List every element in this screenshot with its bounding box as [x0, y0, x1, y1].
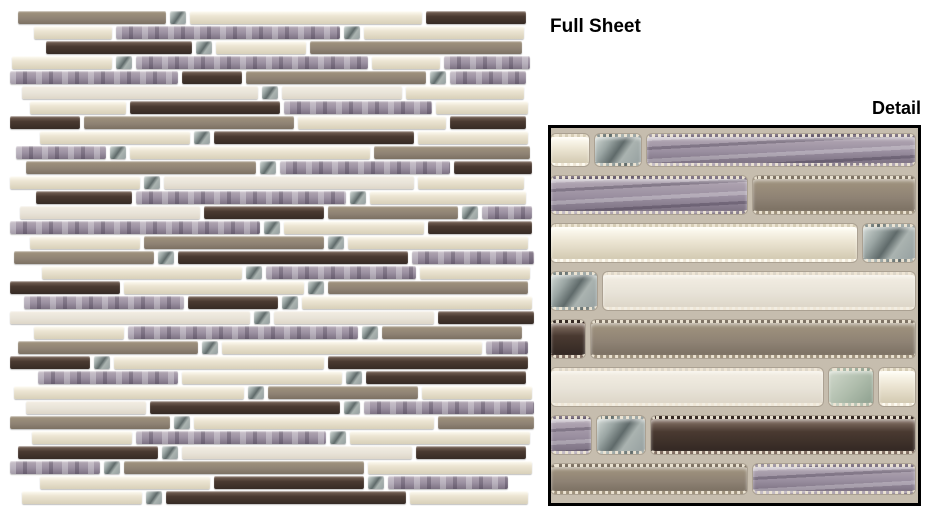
- mosaic-strip-tile: [222, 341, 482, 354]
- tile-row: [10, 490, 535, 505]
- tile-row: [551, 459, 918, 499]
- mosaic-square-tile: [104, 461, 120, 474]
- mosaic-strip-tile: [366, 371, 526, 384]
- mosaic-strip-tile: [328, 281, 528, 294]
- mosaic-square-tile: [595, 134, 641, 166]
- mosaic-strip-tile: [364, 401, 534, 414]
- mosaic-strip-tile: [368, 461, 532, 474]
- mosaic-strip-tile: [298, 116, 446, 129]
- tile-row: [10, 10, 535, 25]
- mosaic-strip-tile: [551, 416, 591, 454]
- mosaic-strip-tile: [216, 41, 306, 54]
- mosaic-square-tile: [162, 446, 178, 459]
- tile-row: [10, 445, 535, 460]
- mosaic-strip-tile: [10, 356, 90, 369]
- mosaic-strip-tile: [591, 320, 915, 358]
- tile-row: [551, 129, 918, 171]
- tile-row: [10, 205, 535, 220]
- mosaic-strip-tile: [30, 236, 140, 249]
- tile-row: [10, 85, 535, 100]
- tile-row: [10, 415, 535, 430]
- tile-row: [551, 315, 918, 363]
- mosaic-strip-tile: [16, 146, 106, 159]
- mosaic-strip-tile: [438, 416, 534, 429]
- mosaic-square-tile: [551, 272, 597, 310]
- tile-row: [10, 250, 535, 265]
- mosaic-strip-tile: [178, 251, 408, 264]
- mosaic-strip-tile: [34, 26, 112, 39]
- mosaic-strip-tile: [438, 311, 534, 324]
- mosaic-square-tile: [262, 86, 278, 99]
- mosaic-strip-tile: [46, 41, 192, 54]
- mosaic-square-tile: [144, 176, 160, 189]
- mosaic-square-tile: [328, 236, 344, 249]
- mosaic-strip-tile: [136, 431, 326, 444]
- mosaic-strip-tile: [40, 476, 210, 489]
- mosaic-strip-tile: [388, 476, 508, 489]
- mosaic-strip-tile: [204, 206, 324, 219]
- mosaic-strip-tile: [36, 191, 132, 204]
- tile-row: [10, 235, 535, 250]
- mosaic-square-tile: [308, 281, 324, 294]
- tile-row: [10, 175, 535, 190]
- mosaic-strip-tile: [450, 71, 526, 84]
- tile-row: [10, 430, 535, 445]
- mosaic-strip-tile: [42, 266, 242, 279]
- mosaic-strip-tile: [426, 11, 526, 24]
- mosaic-strip-tile: [416, 446, 526, 459]
- mosaic-strip-tile: [10, 311, 250, 324]
- tile-row: [10, 340, 535, 355]
- mosaic-strip-tile: [418, 176, 524, 189]
- mosaic-strip-tile: [406, 86, 524, 99]
- mosaic-strip-tile: [753, 464, 915, 494]
- mosaic-strip-tile: [551, 464, 747, 494]
- full-sheet-image: [10, 10, 535, 505]
- tile-row: [10, 355, 535, 370]
- mosaic-square-tile: [110, 146, 126, 159]
- mosaic-strip-tile: [38, 371, 178, 384]
- mosaic-square-tile: [158, 251, 174, 264]
- mosaic-strip-tile: [144, 236, 324, 249]
- mosaic-strip-tile: [182, 371, 342, 384]
- mosaic-strip-tile: [114, 356, 324, 369]
- mosaic-strip-tile: [190, 11, 422, 24]
- mosaic-strip-tile: [124, 281, 304, 294]
- mosaic-strip-tile: [284, 101, 432, 114]
- tile-row: [10, 70, 535, 85]
- tile-row: [10, 310, 535, 325]
- mosaic-strip-tile: [24, 296, 184, 309]
- mosaic-strip-tile: [370, 191, 526, 204]
- mosaic-square-tile: [202, 341, 218, 354]
- mosaic-strip-tile: [551, 368, 823, 406]
- mosaic-strip-tile: [486, 341, 528, 354]
- mosaic-strip-tile: [246, 71, 426, 84]
- mosaic-strip-tile: [551, 320, 585, 358]
- mosaic-strip-tile: [374, 146, 530, 159]
- detail-image: [548, 125, 921, 506]
- mosaic-strip-tile: [188, 296, 278, 309]
- mosaic-square-tile: [597, 416, 645, 454]
- mosaic-square-tile: [264, 221, 280, 234]
- mosaic-strip-tile: [364, 26, 524, 39]
- mosaic-square-tile: [829, 368, 873, 406]
- product-collage: Full Sheet Detail: [0, 0, 935, 512]
- mosaic-strip-tile: [422, 386, 532, 399]
- mosaic-square-tile: [863, 224, 915, 262]
- mosaic-strip-tile: [418, 131, 528, 144]
- mosaic-strip-tile: [18, 11, 166, 24]
- tile-row: [10, 115, 535, 130]
- mosaic-strip-tile: [22, 491, 142, 504]
- mosaic-square-tile: [94, 356, 110, 369]
- mosaic-strip-tile: [436, 101, 528, 114]
- tile-row: [551, 219, 918, 267]
- tile-row: [10, 460, 535, 475]
- tile-row: [10, 190, 535, 205]
- mosaic-strip-tile: [454, 161, 532, 174]
- tile-row: [551, 411, 918, 459]
- mosaic-square-tile: [146, 491, 162, 504]
- mosaic-strip-tile: [450, 116, 526, 129]
- mosaic-strip-tile: [651, 416, 915, 454]
- tile-row: [10, 220, 535, 235]
- tile-row: [10, 145, 535, 160]
- mosaic-strip-tile: [214, 131, 414, 144]
- mosaic-strip-tile: [32, 431, 132, 444]
- mosaic-strip-tile: [20, 206, 200, 219]
- mosaic-strip-tile: [444, 56, 530, 69]
- mosaic-strip-tile: [420, 266, 530, 279]
- mosaic-strip-tile: [603, 272, 915, 310]
- tile-row: [10, 280, 535, 295]
- mosaic-strip-tile: [10, 116, 80, 129]
- mosaic-strip-tile: [182, 446, 412, 459]
- mosaic-square-tile: [362, 326, 378, 339]
- tile-row: [10, 265, 535, 280]
- mosaic-strip-tile: [328, 206, 458, 219]
- mosaic-strip-tile: [10, 416, 170, 429]
- mosaic-square-tile: [254, 311, 270, 324]
- mosaic-strip-tile: [328, 356, 528, 369]
- mosaic-strip-tile: [26, 401, 146, 414]
- mosaic-strip-tile: [18, 341, 198, 354]
- mosaic-strip-tile: [284, 221, 424, 234]
- mosaic-square-tile: [248, 386, 264, 399]
- mosaic-strip-tile: [10, 221, 260, 234]
- mosaic-strip-tile: [10, 176, 140, 189]
- mosaic-strip-tile: [136, 56, 368, 69]
- mosaic-square-tile: [368, 476, 384, 489]
- mosaic-strip-tile: [551, 134, 589, 166]
- tile-row: [10, 40, 535, 55]
- mosaic-strip-tile: [753, 176, 915, 214]
- mosaic-strip-tile: [30, 101, 126, 114]
- mosaic-strip-tile: [310, 41, 522, 54]
- mosaic-square-tile: [170, 11, 186, 24]
- mosaic-square-tile: [462, 206, 478, 219]
- mosaic-strip-tile: [268, 386, 418, 399]
- mosaic-square-tile: [246, 266, 262, 279]
- mosaic-strip-tile: [482, 206, 532, 219]
- tile-row: [10, 400, 535, 415]
- tile-row: [10, 25, 535, 40]
- mosaic-strip-tile: [14, 386, 244, 399]
- tile-row: [10, 160, 535, 175]
- tile-row: [10, 475, 535, 490]
- tile-row: [551, 171, 918, 219]
- mosaic-strip-tile: [34, 326, 124, 339]
- mosaic-strip-tile: [130, 146, 370, 159]
- tile-row: [10, 370, 535, 385]
- mosaic-square-tile: [174, 416, 190, 429]
- mosaic-strip-tile: [164, 176, 414, 189]
- mosaic-strip-tile: [551, 224, 857, 262]
- mosaic-strip-tile: [348, 236, 528, 249]
- tile-row: [10, 55, 535, 70]
- mosaic-strip-tile: [116, 26, 340, 39]
- mosaic-strip-tile: [350, 431, 530, 444]
- tile-row: [10, 100, 535, 115]
- mosaic-strip-tile: [879, 368, 915, 406]
- mosaic-strip-tile: [14, 251, 154, 264]
- mosaic-strip-tile: [266, 266, 416, 279]
- mosaic-strip-tile: [412, 251, 534, 264]
- mosaic-strip-tile: [410, 491, 528, 504]
- mosaic-square-tile: [344, 26, 360, 39]
- mosaic-strip-tile: [22, 86, 258, 99]
- mosaic-strip-tile: [372, 56, 440, 69]
- mosaic-strip-tile: [428, 221, 532, 234]
- mosaic-strip-tile: [551, 176, 747, 214]
- detail-label: Detail: [872, 98, 921, 119]
- tile-row: [10, 295, 535, 310]
- mosaic-square-tile: [346, 371, 362, 384]
- mosaic-strip-tile: [40, 131, 190, 144]
- tile-row: [551, 267, 918, 315]
- mosaic-square-tile: [116, 56, 132, 69]
- mosaic-strip-tile: [274, 311, 434, 324]
- mosaic-strip-tile: [194, 416, 434, 429]
- mosaic-strip-tile: [280, 161, 450, 174]
- mosaic-strip-tile: [84, 116, 294, 129]
- mosaic-strip-tile: [214, 476, 364, 489]
- full-sheet-label: Full Sheet: [550, 16, 641, 38]
- mosaic-strip-tile: [382, 326, 522, 339]
- mosaic-strip-tile: [182, 71, 242, 84]
- mosaic-strip-tile: [130, 101, 280, 114]
- mosaic-strip-tile: [10, 461, 100, 474]
- mosaic-strip-tile: [10, 71, 178, 84]
- mosaic-square-tile: [344, 401, 360, 414]
- tile-row: [10, 385, 535, 400]
- mosaic-square-tile: [350, 191, 366, 204]
- tile-row: [10, 325, 535, 340]
- mosaic-strip-tile: [282, 86, 402, 99]
- mosaic-strip-tile: [166, 491, 406, 504]
- mosaic-strip-tile: [18, 446, 158, 459]
- mosaic-square-tile: [194, 131, 210, 144]
- mosaic-strip-tile: [136, 191, 346, 204]
- mosaic-strip-tile: [647, 134, 915, 166]
- mosaic-strip-tile: [10, 281, 120, 294]
- mosaic-strip-tile: [128, 326, 358, 339]
- mosaic-square-tile: [430, 71, 446, 84]
- mosaic-square-tile: [282, 296, 298, 309]
- tile-row: [10, 130, 535, 145]
- tile-row: [551, 363, 918, 411]
- mosaic-strip-tile: [12, 56, 112, 69]
- mosaic-square-tile: [330, 431, 346, 444]
- mosaic-square-tile: [196, 41, 212, 54]
- mosaic-strip-tile: [124, 461, 364, 474]
- mosaic-square-tile: [260, 161, 276, 174]
- mosaic-strip-tile: [150, 401, 340, 414]
- mosaic-strip-tile: [302, 296, 532, 309]
- mosaic-strip-tile: [26, 161, 256, 174]
